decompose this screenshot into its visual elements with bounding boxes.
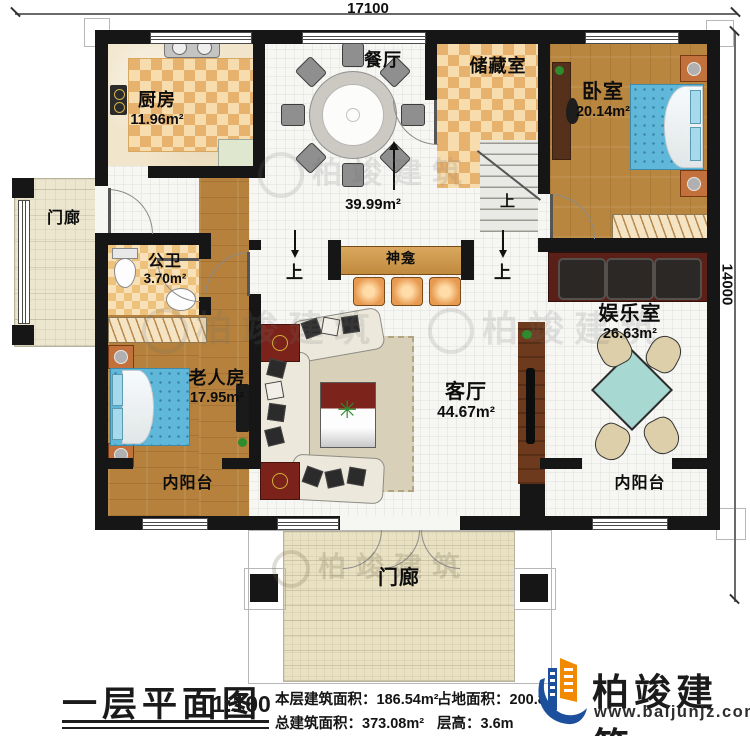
- room-label-porch-bottom: 门廊: [366, 566, 432, 590]
- wall: [538, 238, 720, 252]
- plant-icon: [238, 438, 247, 447]
- dimension-label-top: 17100: [336, 0, 400, 17]
- room-label-bath: 公卫 3.70m²: [128, 252, 202, 287]
- wall: [520, 484, 545, 516]
- wall: [95, 166, 108, 178]
- nightstand: [680, 55, 708, 82]
- wall: [461, 240, 474, 280]
- building-logo-icon: [530, 654, 588, 732]
- floor-plan: 17100 14000 门廊: [0, 0, 750, 736]
- up-label: 上: [494, 258, 511, 283]
- dimension-tick: [730, 7, 741, 18]
- stool: [391, 277, 423, 306]
- table-center: [346, 108, 360, 122]
- window: [277, 518, 339, 530]
- nightstand: [108, 345, 134, 369]
- room-label-living: 客厅 44.67m²: [420, 380, 512, 423]
- sofa-cushion: [558, 258, 606, 300]
- plant-icon: [555, 66, 564, 75]
- floor-mat: [260, 324, 300, 362]
- sofa-cushion: [606, 258, 654, 300]
- room-label-dining: 餐厅: [352, 50, 414, 72]
- bedroom-wardrobe: [612, 214, 709, 239]
- stair-arrow: [393, 148, 395, 190]
- chair: [281, 104, 305, 126]
- step-arrow: [502, 230, 504, 252]
- dining-table: [309, 71, 397, 159]
- porch-column: [520, 574, 548, 602]
- wall: [95, 233, 211, 245]
- wall: [253, 44, 265, 178]
- porch-column: [12, 325, 34, 345]
- stat-floor-area: 本层建筑面积：186.54m²: [275, 688, 439, 709]
- plant-icon: [522, 330, 532, 339]
- step-arrow: [294, 230, 296, 252]
- room-label-shrine: 神龛: [366, 250, 436, 267]
- sofa-pillow: [347, 467, 367, 487]
- window: [592, 518, 668, 530]
- stairs: [480, 140, 538, 232]
- wall: [540, 458, 582, 469]
- title-underline: [62, 720, 269, 723]
- bed-blanket: [122, 370, 154, 444]
- brand-name: 柏竣建筑: [592, 662, 750, 736]
- fridge: [218, 139, 254, 168]
- title-underline: [62, 727, 269, 729]
- plan-scale: 1:100: [212, 691, 271, 718]
- wall: [425, 44, 437, 100]
- column-outline: [716, 508, 746, 540]
- pillow-icon: [112, 374, 123, 406]
- porch-column: [12, 178, 34, 198]
- pillow-icon: [690, 127, 701, 161]
- step-arrow-head: [499, 250, 507, 258]
- window: [302, 32, 426, 44]
- wall: [249, 240, 261, 250]
- step-arrow-head: [291, 250, 299, 258]
- window: [142, 518, 208, 530]
- door-leaf: [108, 188, 111, 233]
- sofa-pillow: [341, 315, 360, 334]
- wall: [199, 297, 211, 315]
- dimension-label-right: 14000: [719, 250, 736, 320]
- dimension-tick: [10, 7, 21, 18]
- room-label-elder: 老人房 17.95m²: [172, 368, 262, 407]
- up-label-stairs: 上: [500, 190, 515, 211]
- stat-total-area: 总建筑面积：373.08m²: [275, 712, 424, 733]
- wall: [328, 240, 341, 280]
- room-label-storage: 储藏室: [458, 56, 538, 78]
- stool: [429, 277, 461, 306]
- brand-logo-icon: [530, 654, 588, 732]
- sofa-cushion: [654, 258, 702, 300]
- stat-storey-height: 层高：3.6m: [437, 712, 514, 733]
- plant-icon: ✳: [334, 398, 360, 424]
- window: [585, 32, 679, 44]
- room-label-hall-area: 39.99m²: [336, 196, 410, 214]
- wall: [538, 44, 550, 194]
- sofa-pillow: [321, 317, 341, 337]
- wall: [148, 166, 265, 178]
- floor-mat: [260, 462, 300, 500]
- room-label-bedroom: 卧室 20.14m²: [558, 80, 648, 121]
- wall: [95, 233, 108, 516]
- stool: [353, 277, 385, 306]
- window: [18, 200, 30, 324]
- door-leaf: [434, 100, 437, 144]
- room-label-balcony-left: 内阳台: [148, 474, 228, 493]
- wall: [222, 458, 261, 469]
- pillow-icon: [112, 408, 123, 440]
- sofa-pillow: [265, 381, 285, 401]
- room-label-porch-left: 门廊: [36, 209, 92, 228]
- sofa-pillow: [267, 403, 286, 422]
- game-sofa: [548, 252, 708, 302]
- brand-url: www.baijunjz.com: [594, 703, 750, 722]
- room-label-balcony-right: 内阳台: [600, 474, 680, 493]
- room-label-game: 娱乐室 26.63m²: [582, 302, 678, 343]
- tv-icon: [526, 368, 535, 444]
- door-leaf: [247, 252, 250, 296]
- door-leaf: [550, 194, 553, 238]
- chair: [342, 163, 364, 187]
- door-opening: [95, 186, 108, 233]
- wall: [95, 44, 108, 186]
- nightstand: [680, 170, 708, 197]
- up-label: 上: [286, 258, 303, 283]
- entrance-opening: [340, 516, 460, 530]
- porch-column: [250, 574, 278, 602]
- window: [150, 32, 252, 44]
- pillow-icon: [690, 90, 701, 124]
- sofa-pillow: [324, 468, 344, 488]
- wall: [95, 458, 133, 469]
- storage-floor: [437, 140, 481, 188]
- stair-arrow-head: [389, 141, 399, 150]
- bath-wardrobe: [108, 317, 207, 343]
- room-label-kitchen: 厨房 11.96m²: [116, 90, 198, 129]
- wall: [672, 458, 720, 469]
